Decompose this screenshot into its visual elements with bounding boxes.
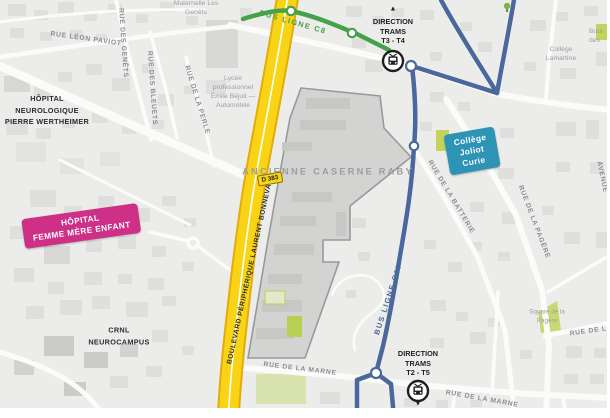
map-canvas[interactable]: Maternelle Les Genêts RUE LÉON PAVIOT RU… <box>0 0 610 418</box>
direction-trams-t2-t5-label: DIRECTION TRAMS T2 - T5 <box>398 349 438 378</box>
tram-icon <box>380 48 406 74</box>
lycee-label: Lycée professionnel Émile Béjuit — Autom… <box>211 74 256 110</box>
hopital-neurologique-label: HÔPITAL NEUROLOGIQUE PIERRE WERTHEIMER <box>5 93 89 128</box>
maternelle-genets-label: Maternelle Les Genêts <box>174 0 219 17</box>
college-joliot-curie-banner: Collège Joliot Curie <box>443 126 500 175</box>
college-lamartine-label: Collège Lamartine <box>546 45 576 63</box>
boulodrome-partial-label: Boul des <box>589 27 603 45</box>
frame-bottom <box>0 408 610 418</box>
direction-down-arrow-icon: ▼ <box>415 401 422 408</box>
crnl-neurocampus-label: CRNL NEUROCAMPUS <box>88 325 149 348</box>
direction-up-arrow-icon: ▲ <box>390 6 397 13</box>
square-pagere-label: Square de la Pagère <box>529 309 565 326</box>
direction-trams-t3-t4-label: DIRECTION TRAMS T3 - T4 <box>373 17 413 46</box>
c17-stop-node <box>406 61 416 71</box>
c17-stop-node <box>371 368 381 378</box>
c8-stop-node <box>287 7 295 15</box>
c8-stop-node <box>348 29 356 37</box>
c17-stop-node <box>410 142 418 150</box>
